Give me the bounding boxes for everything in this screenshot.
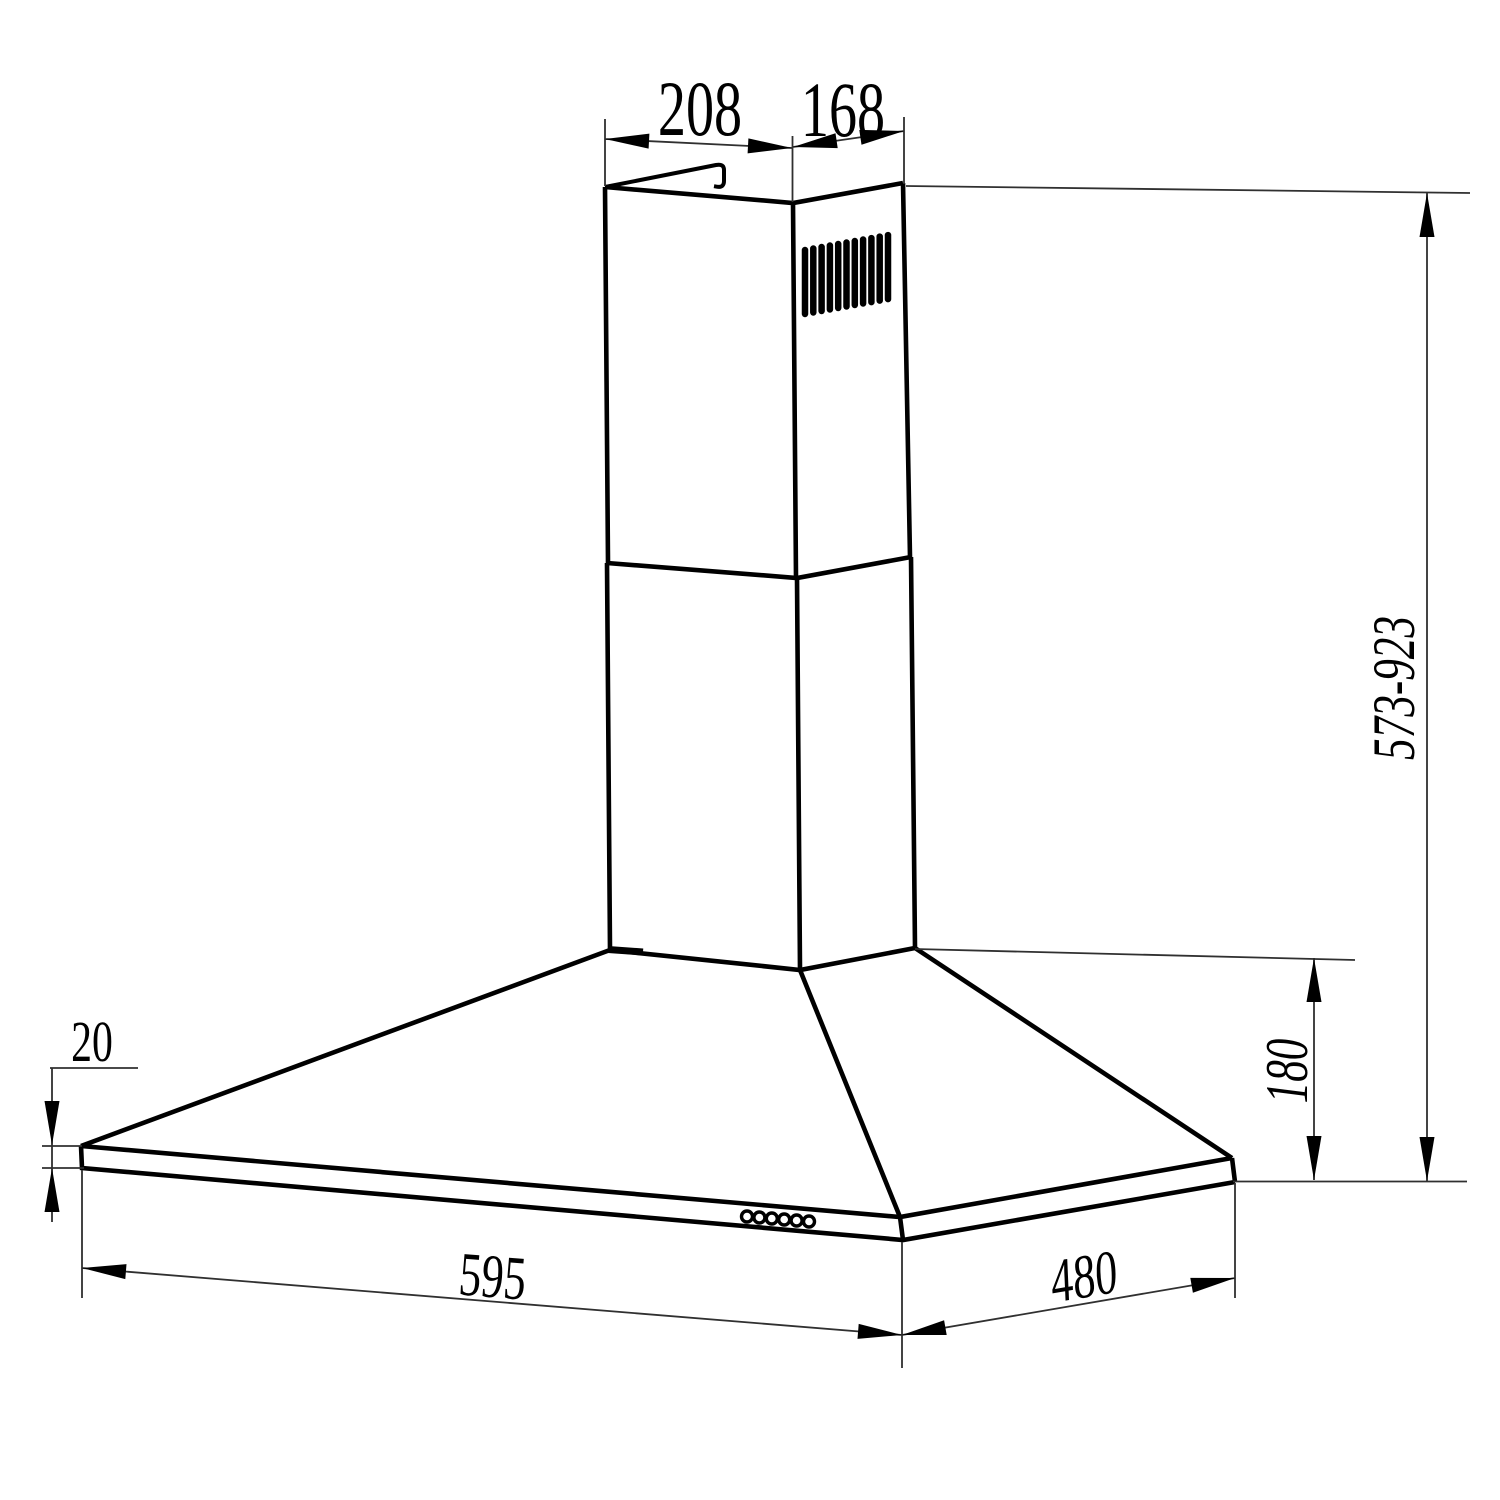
dim-chimney-top-depth: 168 [793, 66, 904, 184]
dim-canopy-height: 180 [915, 949, 1467, 1182]
arrow-down-icon [1307, 1136, 1322, 1180]
hood-body [81, 165, 1235, 1240]
dim-label-480: 480 [1045, 1237, 1123, 1316]
chimney-lower-section [607, 557, 915, 970]
dim-label-208: 208 [658, 65, 742, 152]
dim-hood-width: 595 [82, 1170, 902, 1368]
arrow-left-icon [82, 1264, 127, 1279]
arrow-left-icon [605, 134, 649, 149]
arrow-left-icon [902, 1320, 947, 1335]
vent-grille-icon [805, 235, 888, 314]
dim-label-168: 168 [801, 66, 885, 153]
dim-label-573-923: 573-923 [1361, 616, 1428, 760]
arrow-right-icon [1190, 1278, 1235, 1293]
chimney-joint-line [607, 557, 911, 578]
arrow-down-icon [45, 1101, 60, 1145]
chimney-base-tick [608, 950, 643, 953]
dim-chimney-height-range: 573-923 [906, 186, 1470, 1181]
dim-rim-thickness: 20 [42, 1009, 138, 1222]
arrow-up-icon [1420, 193, 1435, 237]
arrow-right-icon [748, 138, 792, 153]
arrow-up-icon [1307, 958, 1322, 1002]
dim-label-20: 20 [71, 1009, 113, 1073]
chimney-top-flap [605, 165, 724, 187]
arrow-right-icon [858, 1324, 903, 1339]
dimension-annotations: 208 168 573-923 180 20 [42, 65, 1470, 1368]
base-rim [81, 1146, 1235, 1240]
arrow-down-icon [1420, 1137, 1435, 1181]
technical-drawing-canvas: 208 168 573-923 180 20 [0, 0, 1500, 1500]
dim-label-180: 180 [1254, 1039, 1321, 1104]
dim-label-595: 595 [457, 1239, 529, 1313]
arrow-up-icon [45, 1168, 60, 1212]
chimney-base-edges [610, 948, 915, 970]
cooker-hood-dimension-drawing: 208 168 573-923 180 20 [0, 0, 1500, 1500]
canopy-ridges [81, 948, 1232, 1217]
